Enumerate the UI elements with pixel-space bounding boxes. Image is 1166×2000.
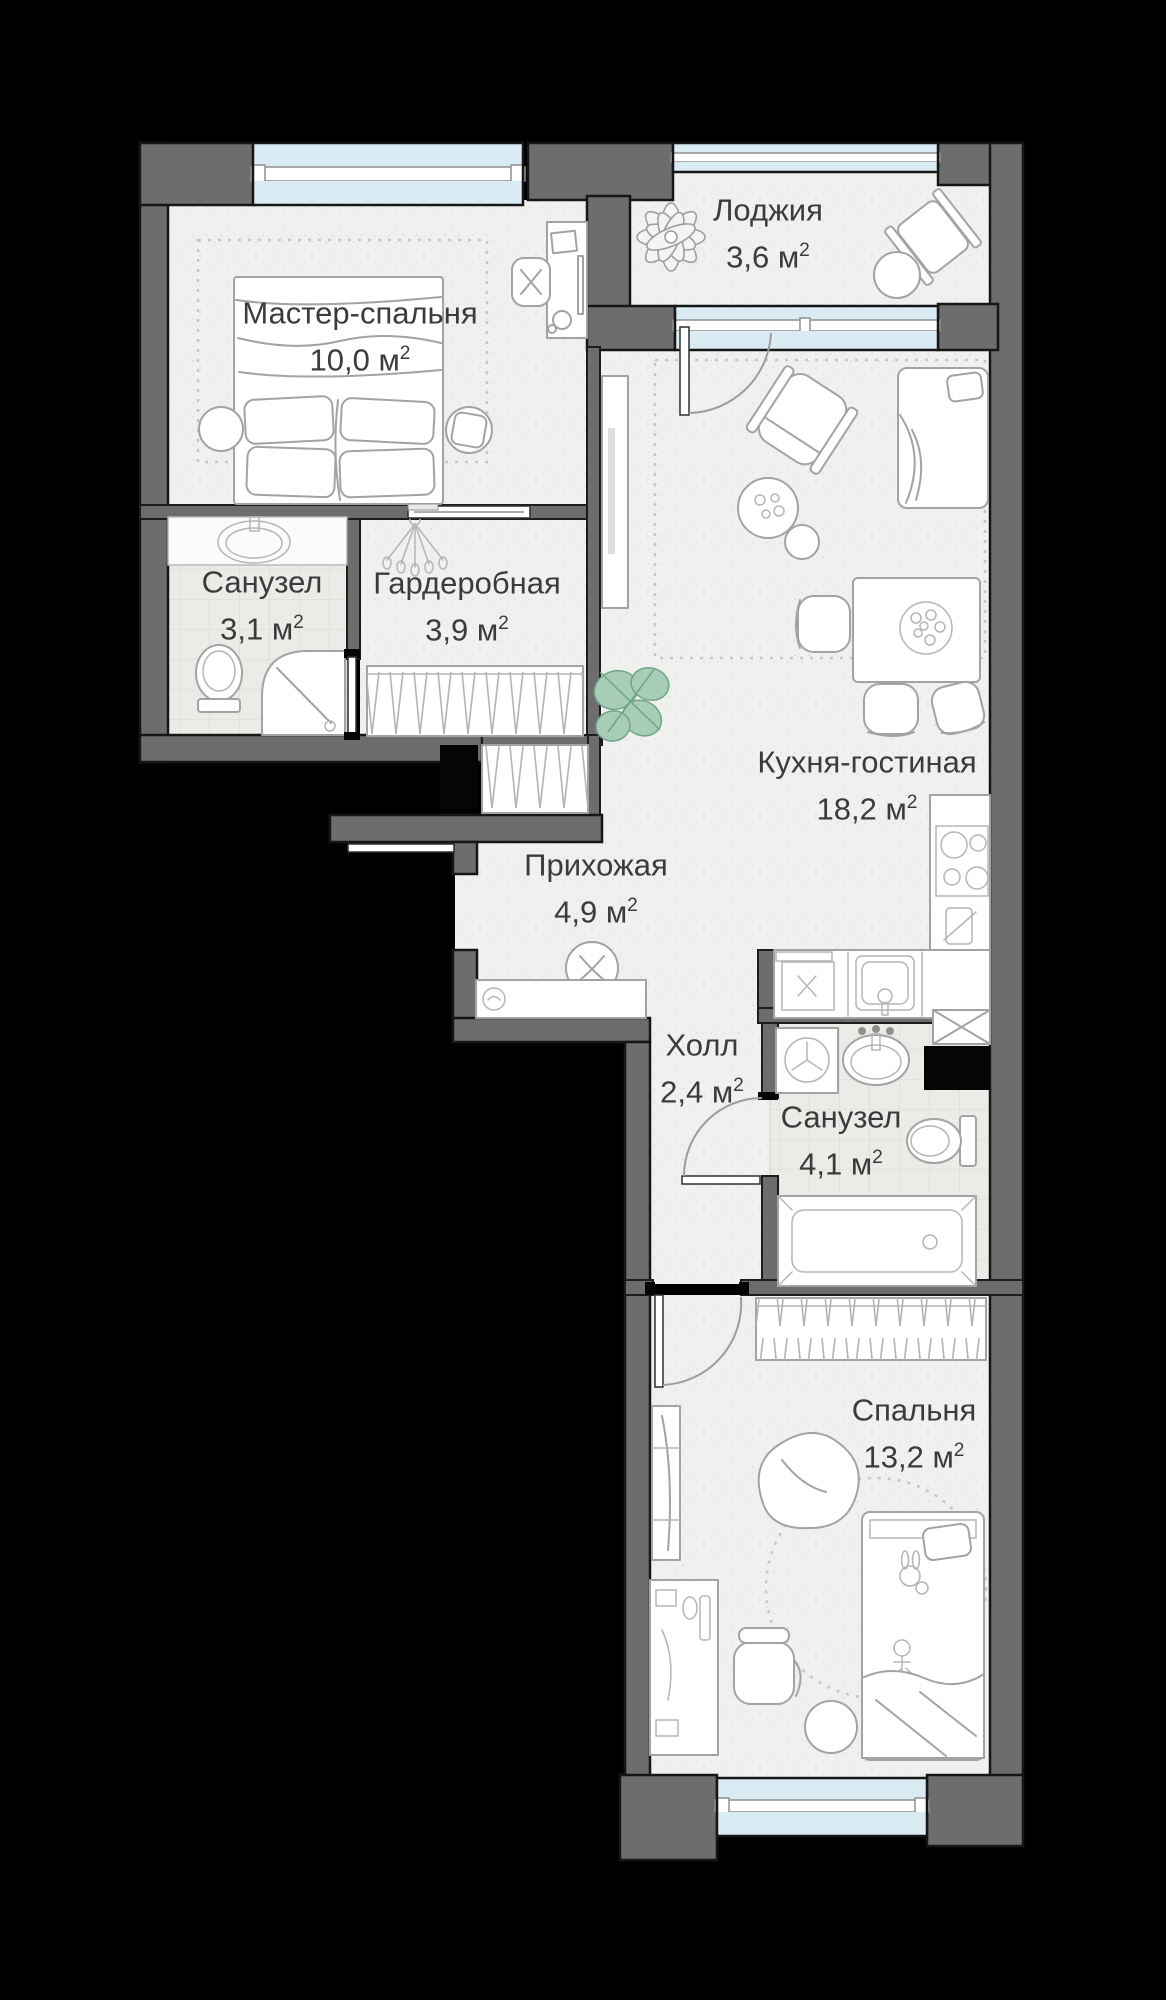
- desk-icon: [650, 1580, 718, 1755]
- bathtub-icon: [778, 1196, 976, 1286]
- room-area: 4,9 м2: [524, 889, 668, 936]
- shoe-bench-icon: [476, 980, 646, 1018]
- bean-bag-icon: [759, 1433, 859, 1528]
- entrance-door: [348, 844, 454, 852]
- room-name: Кухня-гостиная: [757, 740, 976, 787]
- shower-icon: [262, 651, 345, 735]
- crib-icon: [862, 1512, 984, 1760]
- window-bedroom: [715, 1778, 929, 1836]
- round-table-icon: [874, 252, 920, 298]
- office-chair-icon: [512, 258, 550, 306]
- window-loggia-partition: [673, 306, 940, 350]
- wardrobe-rack-icon: [756, 1298, 986, 1360]
- room-name: Лоджия: [713, 188, 823, 235]
- shaft-niche: [440, 745, 478, 809]
- toilet-icon: [196, 645, 242, 712]
- window-loggia-top: [671, 143, 940, 172]
- kitchen-counter-bottom-icon: [774, 950, 990, 1018]
- room-name: Мастер-спальня: [242, 291, 477, 338]
- ball-icon: [805, 1701, 857, 1753]
- dining-chair-icon: [864, 684, 918, 736]
- loggia-plant-icon: [637, 203, 705, 271]
- sliding-door-master-wardrobe: [408, 504, 530, 518]
- hallway-closet-icon: [482, 745, 588, 813]
- mirror-icon: [652, 1406, 680, 1560]
- room-name: Санузел: [781, 1095, 902, 1142]
- room-label-bedroom: Спальня 13,2 м2: [852, 1388, 977, 1481]
- room-area: 10,0 м2: [242, 337, 477, 384]
- duct-cross-icon: [933, 1010, 990, 1044]
- stool-icon: [199, 407, 243, 451]
- room-label-hall: Холл 2,4 м2: [660, 1023, 744, 1116]
- room-area: 3,6 м2: [713, 234, 823, 281]
- floor-plan-stage: Мастер-спальня 10,0 м2 Лоджия 3,6 м2 Сан…: [0, 0, 1166, 2000]
- room-area: 2,4 м2: [660, 1069, 744, 1116]
- room-name: Прихожая: [524, 843, 668, 890]
- tv-console-icon: [602, 376, 628, 608]
- blanket: [862, 1671, 984, 1758]
- room-label-loggia: Лоджия 3,6 м2: [713, 188, 823, 281]
- room-label-master-bedroom: Мастер-спальня 10,0 м2: [242, 291, 477, 384]
- shaft-box: [924, 1046, 990, 1090]
- nightstand-icon: [446, 407, 492, 453]
- pouf-icon: [785, 525, 819, 559]
- room-name: Спальня: [852, 1388, 977, 1435]
- wardrobe-rack-icon: [367, 666, 583, 736]
- window-master: [251, 143, 525, 205]
- room-area: 3,9 м2: [373, 607, 561, 654]
- room-area: 13,2 м2: [852, 1434, 977, 1481]
- desk-icon: [547, 222, 587, 338]
- room-label-kitchen-living: Кухня-гостиная 18,2 м2: [757, 740, 976, 833]
- sofa-bed-icon: [898, 368, 988, 508]
- room-name: Гардеробная: [373, 561, 561, 608]
- room-area: 18,2 м2: [757, 786, 976, 833]
- room-name: Холл: [660, 1023, 744, 1070]
- toilet-icon: [907, 1116, 976, 1166]
- dining-chair-icon: [796, 596, 850, 652]
- room-name: Санузел: [202, 560, 323, 607]
- room-label-bathroom-1: Санузел 3,1 м2: [202, 560, 323, 653]
- dining-table-icon: [853, 578, 980, 682]
- room-area: 4,1 м2: [781, 1141, 902, 1188]
- room-area: 3,1 м2: [202, 606, 323, 653]
- room-label-wardrobe: Гардеробная 3,9 м2: [373, 561, 561, 654]
- washing-machine-icon: [776, 1028, 838, 1093]
- floor-plan-svg: [0, 0, 1166, 2000]
- room-label-hallway: Прихожая 4,9 м2: [524, 843, 668, 936]
- room-label-bathroom-2: Санузел 4,1 м2: [781, 1095, 902, 1188]
